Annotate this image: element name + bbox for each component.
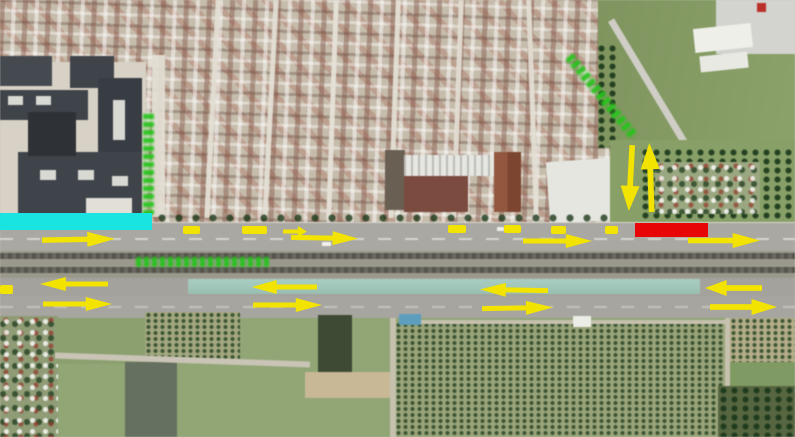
flow-arrow-left (252, 280, 317, 294)
flow-arrow-right (43, 297, 112, 311)
lane-dash-marker (551, 226, 566, 234)
lane-dash-marker (448, 225, 466, 233)
flow-arrow-left (40, 277, 108, 291)
lane-dash-marker (504, 225, 521, 233)
cyan-segment-bar (0, 213, 152, 230)
lane-dash-marker (0, 285, 13, 294)
lane-dash-marker (183, 226, 200, 234)
flow-arrow-left (480, 282, 548, 297)
lane-dash-marker (242, 226, 267, 234)
flow-arrow-down (619, 145, 641, 212)
lane-dash-marker (605, 226, 618, 234)
flow-arrow-up (640, 143, 661, 213)
flow-arrow-right (710, 299, 777, 315)
aerial-map (0, 0, 795, 437)
flow-arrow-right (253, 298, 322, 312)
flow-arrow-right (482, 300, 553, 315)
flow-arrow-left (705, 280, 762, 296)
red-segment-bar (635, 223, 708, 237)
annotation-layer (0, 0, 795, 437)
flow-arrow-right (42, 231, 115, 247)
flow-arrow-right (523, 234, 592, 248)
